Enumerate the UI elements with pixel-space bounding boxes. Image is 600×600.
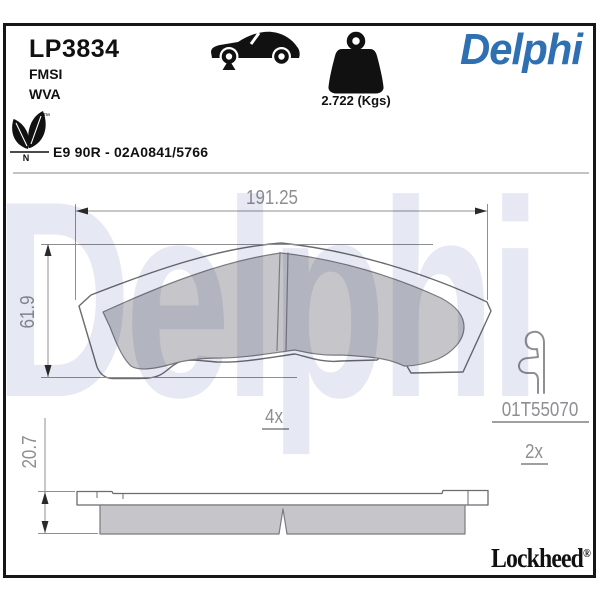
pad-quantity: 4x [249,407,300,427]
accessory-qty-underline [521,463,548,465]
eco-mark-letter: N [18,153,34,163]
part-number: LP3834 [29,35,120,64]
eco-trademark: ™ [43,113,50,120]
dimension-height: 61.9 [18,287,38,338]
accessory-ref-underline [492,421,589,423]
weight-value: 2.722 (Kgs) [314,93,398,108]
pad-quantity-underline [262,428,289,430]
pad-front-view [79,243,491,379]
datasheet-page: LP3834 FMSI WVA E9 90R - 02A0841/5766 De… [0,0,600,600]
technical-drawing [0,0,600,600]
pad-side-view [77,491,488,535]
registered-mark: ® [583,546,590,560]
accessory-reference: 01T55070 [498,400,583,420]
accessory-quantity: 2x [509,442,560,462]
dimension-width: 191.25 [230,188,315,208]
side-friction [100,505,465,534]
side-backplate [77,491,488,506]
wva-label: WVA [29,86,61,102]
lockheed-logo: Lockheed® [458,543,590,574]
homologation-code: E9 90R - 02A0841/5766 [53,144,208,160]
weight-icon [328,35,383,94]
retainer-clip-drawing [519,332,544,393]
fmsi-label: FMSI [29,66,62,82]
dimension-thickness: 20.7 [20,427,40,478]
delphi-logo: Delphi [460,25,582,75]
car-side-icon [211,32,300,70]
lockheed-wordmark: Lockheed [491,543,583,573]
